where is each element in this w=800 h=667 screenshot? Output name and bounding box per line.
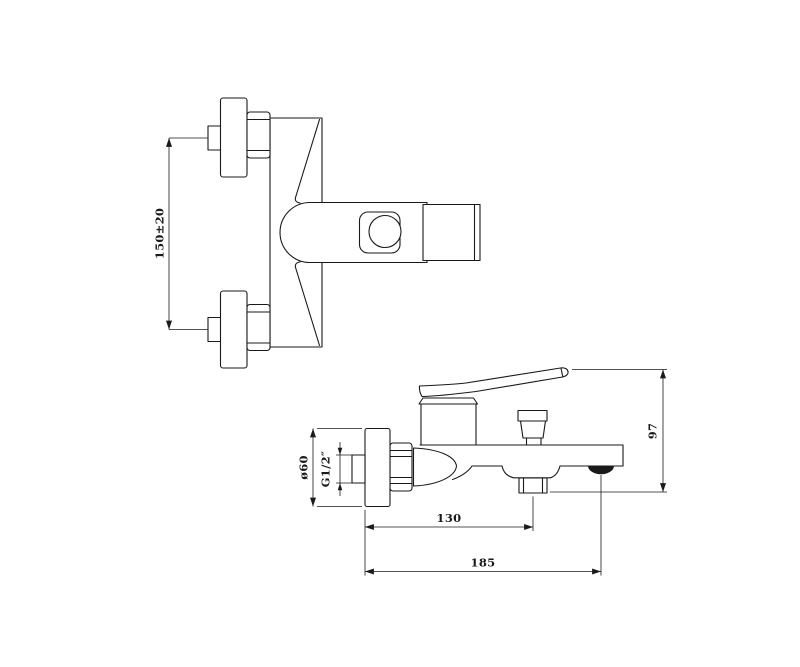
faucet-body-front	[280, 203, 427, 263]
spout-aerator	[588, 466, 614, 474]
dimension-inlet-spacing: 150±20	[153, 138, 209, 330]
cartridge-collar	[419, 398, 478, 404]
dim-label-escutcheon-diameter: ø60	[297, 455, 311, 480]
escutcheon-side	[365, 429, 390, 507]
dim-label-body-height: 97	[646, 423, 660, 440]
side-view: ø60 G1/2″ 130	[297, 368, 668, 576]
mounting-nut-top	[247, 112, 270, 158]
drawing-sheet: 150±20	[0, 0, 800, 667]
dim-label-inlet-thread: G1/2″	[319, 451, 333, 488]
diverter-knob-stem	[527, 438, 542, 445]
valve-body	[421, 404, 476, 445]
dim-label-inlet-spacing: 150±20	[153, 208, 167, 259]
handle-lever	[419, 368, 568, 397]
mounting-nut-bottom	[247, 305, 270, 351]
dim-label-wall-to-spout-end: 185	[471, 556, 496, 570]
spout-front	[423, 205, 480, 261]
eccentric-connector-bottom	[208, 318, 221, 342]
diverter-knob-body	[521, 421, 546, 438]
dim-label-wall-to-shower-outlet: 130	[437, 511, 462, 525]
escutcheon-bottom	[221, 291, 248, 368]
diverter-circle	[369, 216, 401, 248]
dimension-body-height: 97	[550, 370, 667, 493]
arrow-up	[338, 483, 343, 490]
escutcheon-top	[221, 98, 248, 177]
diverter-knob-cap	[518, 411, 547, 422]
front-view: 150±20	[153, 98, 481, 368]
dimension-inlet-thread: G1/2″	[319, 442, 354, 496]
shower-outlet-boss	[502, 466, 560, 478]
arrow-down	[338, 448, 343, 455]
faucet-technical-drawing: 150±20	[0, 0, 800, 667]
eccentric-connector-top	[208, 126, 221, 150]
thread-connector	[352, 455, 365, 483]
